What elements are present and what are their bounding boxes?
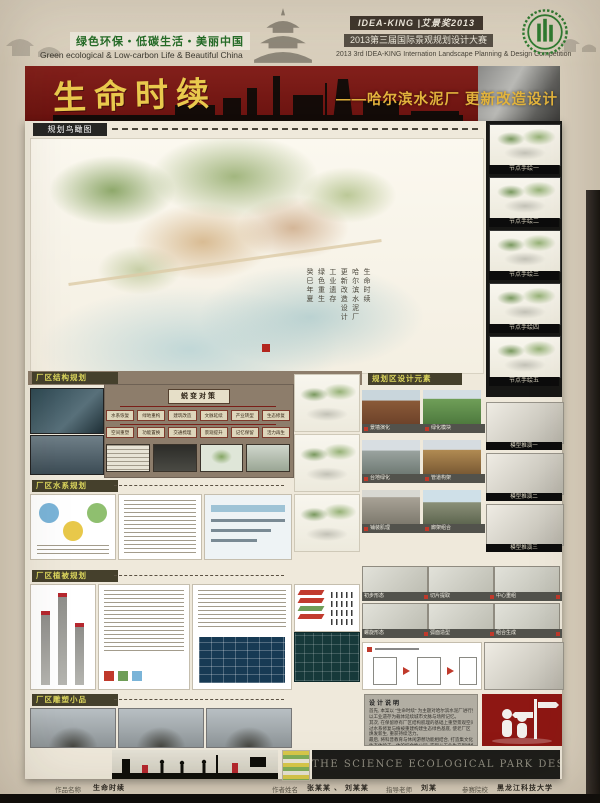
strategy-item: 功能置换 (137, 427, 165, 438)
layer-figures-panel (294, 584, 360, 632)
factory-photo-1 (30, 388, 104, 434)
divider-dashed (114, 699, 284, 700)
red-arrow-chip (364, 427, 368, 431)
figure-row (331, 610, 353, 616)
red-arrow-chip (364, 477, 368, 481)
tower-silhouette (41, 611, 50, 685)
element-caption: 台地绿化 (362, 474, 424, 483)
section-elements: 规划区设计元素 (368, 373, 462, 385)
planting-notes (98, 584, 190, 690)
annotation-line: 绿色重生 (317, 268, 325, 364)
cycle-node-blue (39, 503, 59, 523)
mid-sketch-2 (294, 434, 360, 492)
strategy-item: 交通梳理 (168, 427, 196, 438)
cycle-node-green (87, 503, 107, 523)
transform-caption: 初步形态 (362, 592, 430, 601)
transform-caption: 组合生成 (494, 629, 562, 638)
node-sketch-3 (489, 230, 561, 272)
element-thumb-1 (362, 390, 420, 424)
photo-bottom-edge (0, 794, 600, 803)
figure-rows (327, 589, 357, 628)
design-note: 设计说明 首先, 本案以 "生命时续" 为主题对哈尔滨水泥厂进行更新改造, 以工… (364, 694, 478, 746)
axon-box (373, 657, 397, 685)
layer-green (298, 606, 325, 611)
water-band (211, 505, 285, 512)
red-arrow-icon (403, 667, 410, 675)
tower-elevations (30, 584, 96, 690)
annotation-line: 生命时续 (363, 268, 371, 364)
transform-caption-label: 切片提取 (430, 592, 450, 601)
red-arrow-icon (447, 667, 454, 675)
laurel-emblem-icon (521, 8, 569, 56)
transform-thumb-6 (494, 603, 560, 631)
aerial-plan-drawing (30, 138, 484, 374)
credit-school-value: 黑龙江科技大学 (497, 783, 553, 793)
element-caption: 绿化模块 (423, 424, 485, 433)
transform-thumb-3 (494, 566, 560, 594)
figure-row (331, 601, 353, 607)
poster-title: 生命时续 (52, 67, 217, 119)
strategy-item: 绿地重构 (137, 410, 165, 421)
plant-matrix-table (294, 632, 360, 682)
element-caption-label: 廊架组合 (431, 524, 451, 533)
strategy-thumb-reed (246, 444, 290, 472)
water-cycle-diagram (30, 494, 116, 560)
model-photo-2 (486, 453, 564, 495)
connector-line (120, 424, 276, 425)
element-thumb-3 (362, 440, 420, 474)
node-sketch-caption: 节点手绘三 (489, 271, 559, 280)
legend-chip-red (104, 671, 114, 681)
strategy-item: 产业转型 (231, 410, 259, 421)
axon-diagram (362, 642, 482, 690)
model-photo-3 (486, 504, 564, 546)
element-caption-label: 铺装肌理 (370, 524, 390, 533)
element-caption-label: 管道构架 (431, 474, 451, 483)
strategy-row-2: 空间重塑 功能置换 交通梳理 景观提升 记忆保留 活力再生 (106, 427, 290, 438)
birdseye-tab: 规划鸟瞰图 (33, 123, 107, 136)
section-sculpture: 厂区雕塑小品 (32, 694, 118, 706)
transform-caption-label: 弧面造型 (430, 629, 450, 638)
schematic-bar (211, 539, 257, 542)
diagram-title-line (375, 648, 419, 650)
red-arrow-chip (425, 427, 429, 431)
element-thumb-6 (423, 490, 481, 524)
footer-band: THE SCIENCE ECOLOGICAL PARK DESIGN (312, 750, 560, 779)
element-caption-label: 景墙演化 (370, 424, 390, 433)
divider-dashed (114, 485, 284, 486)
axon-box (459, 657, 477, 685)
street-scene-strip (112, 750, 278, 779)
red-arrow-chip (556, 632, 560, 636)
legend-chip-blue (132, 671, 142, 681)
mid-sketch-3 (294, 494, 360, 552)
strategy-item: 活力再生 (262, 427, 290, 438)
strategy-thumb-sketch (106, 444, 150, 472)
transform-caption-label: 螺旋形态 (364, 629, 384, 638)
annotation-line: 更新改造设计 (340, 268, 348, 364)
strategy-thumb-plant (200, 444, 244, 472)
element-caption: 景墙演化 (362, 424, 424, 433)
node-sketch-caption: 节点手绘一 (489, 165, 559, 174)
gate-render-3 (206, 708, 292, 748)
street-silhouette-icon (112, 750, 278, 779)
figure-row (331, 619, 353, 625)
node-sketch-1 (489, 124, 561, 166)
competition-title-cn: 2013第三届国际景观规划设计大赛 (344, 34, 493, 47)
micro-text-lines (104, 590, 184, 654)
legend-chip-green (118, 671, 128, 681)
credit-advisor-label: 指导老师 (386, 784, 412, 794)
model-caption: 模型推演三 (486, 544, 562, 552)
temple-silhouette-icon (252, 6, 314, 64)
schematic-bar (211, 529, 271, 532)
layer-red (298, 590, 325, 595)
divider-dashed (114, 575, 284, 576)
node-sketch-2 (489, 177, 561, 219)
annotation-line: 癸巳年夏 (306, 268, 314, 364)
design-note-line: 生态体验于一体的综合性公园, 实现从工业生产到绿色生活 (369, 743, 473, 746)
element-caption-label: 绿化模块 (431, 424, 451, 433)
micro-text-lines (124, 500, 196, 554)
strategy-item: 生态修复 (262, 410, 290, 421)
transform-thumb-4 (362, 603, 428, 631)
annotation-line: 哈尔滨水泥厂 (351, 268, 359, 364)
strategy-item: 空间重塑 (106, 427, 134, 438)
red-seal (262, 344, 270, 352)
blue-data-grid (199, 637, 285, 683)
gate-render-2 (118, 708, 204, 748)
layer-red (298, 598, 325, 603)
section-water: 厂区水系规划 (32, 480, 118, 492)
transform-caption-label: 组合生成 (496, 629, 516, 638)
water-text-panel (118, 494, 202, 560)
credit-author-value: 张某某 、 刘某某 (307, 783, 369, 793)
poster-subtitle: ——哈尔滨水泥厂 更新改造设计 (336, 88, 558, 109)
figure-row (331, 592, 353, 598)
design-note-line: 首先, 本案以 "生命时续" 为主题对哈尔滨水泥厂进行更新改造, (369, 708, 473, 714)
figures-signpost-icon (482, 694, 562, 746)
strategy-thumb-stone (153, 444, 197, 472)
factory-photo-2 (30, 435, 104, 475)
divider-dashed-top (112, 128, 478, 130)
section-structure: 厂区结构规划 (32, 372, 118, 384)
transform-caption-label: 初步形态 (364, 592, 384, 601)
idea-king-brand: IDEA-KING |艾景奖2013 (350, 16, 483, 30)
handwritten-annotations: 生命时续 哈尔滨水泥厂 更新改造设计 工业遗存 绿色重生 癸巳年夏 (270, 268, 374, 364)
elevation-panel (282, 750, 310, 781)
section-planting: 厂区植被规划 (32, 570, 118, 582)
model-photo-large (484, 642, 564, 690)
transform-thumb-5 (428, 603, 494, 631)
element-thumb-2 (423, 390, 481, 424)
connector-line (120, 406, 276, 407)
transform-caption: 切片提取 (428, 592, 496, 601)
transform-caption: 螺旋形态 (362, 629, 430, 638)
credit-school-label: 参赛院校 (462, 784, 488, 794)
design-note-line: 其次, 在保留原有厂区结构肌理的基础上重塑景观空间, 通 (369, 720, 473, 726)
element-thumb-5 (362, 490, 420, 524)
mid-sketch-1 (294, 374, 360, 432)
logo-square (482, 694, 562, 746)
cycle-node-yellow (63, 521, 83, 541)
element-caption: 铺装肌理 (362, 524, 424, 533)
red-arrow-chip (425, 527, 429, 531)
red-arrow-chip (425, 477, 429, 481)
design-note-line: 以工业遗存为载体延续城市文脉与场所记忆。 (369, 714, 473, 720)
eco-slogan-en: Green ecological & Low-carbon Life & Bea… (40, 50, 243, 60)
micro-text-lines (198, 590, 286, 630)
node-sketch-4 (489, 283, 561, 325)
water-schematic (204, 494, 292, 560)
node-sketch-caption: 节点手绘四 (489, 324, 559, 333)
credit-advisor-value: 刘某 (421, 783, 437, 793)
credit-author-label: 作者姓名 (272, 784, 298, 794)
transform-caption: 中心重组 (494, 592, 562, 601)
gate-render-1 (30, 708, 116, 748)
species-table-panel (192, 584, 292, 690)
transform-thumb-1 (362, 566, 428, 594)
tower-silhouette (75, 623, 84, 685)
node-sketch-caption: 节点手绘五 (489, 377, 559, 386)
poster-photo: 绿色环保・低碳生活・美丽中国 Green ecological & Low-ca… (0, 0, 600, 803)
node-sketch-5 (489, 336, 561, 378)
transform-caption-label: 中心重组 (496, 592, 516, 601)
credit-work-label: 作品名称 (55, 784, 81, 794)
model-caption: 模型推演二 (486, 493, 562, 501)
strategy-item: 记忆保留 (231, 427, 259, 438)
photo-right-edge (586, 190, 600, 803)
strategy-thumbnails (106, 444, 290, 472)
model-photo-1 (486, 402, 564, 444)
strategy-item: 水系恢复 (106, 410, 134, 421)
transform-thumb-2 (428, 566, 494, 594)
node-sketch-caption: 节点手绘二 (489, 218, 559, 227)
model-caption: 模型推演一 (486, 442, 562, 450)
annotation-line: 工业遗存 (328, 268, 336, 364)
element-thumb-4 (423, 440, 481, 474)
diagram-caption-lines (37, 545, 109, 555)
strategy-root: 蜕变对策 (168, 389, 230, 404)
red-tab (367, 647, 372, 652)
design-note-title: 设计说明 (369, 698, 473, 707)
element-caption-label: 台地绿化 (370, 474, 390, 483)
red-arrow-chip (364, 527, 368, 531)
schematic-bar (211, 519, 285, 522)
axon-box (417, 657, 441, 685)
strategy-item: 文脉延续 (200, 410, 228, 421)
credit-work-value: 生命时续 (93, 783, 125, 793)
transform-caption: 弧面造型 (428, 629, 496, 638)
strategy-item: 建筑改造 (168, 410, 196, 421)
title-banner: 生命时续 ——哈尔滨水泥厂 更新改造设计 (25, 66, 560, 121)
strategy-item: 景观提升 (200, 427, 228, 438)
red-arrow-chip (556, 595, 560, 599)
layer-red (298, 614, 325, 619)
tower-silhouette (58, 593, 67, 685)
strategy-row-1: 水系恢复 绿地重构 建筑改造 文脉延续 产业转型 生态修复 (106, 410, 290, 421)
eco-slogan-cn: 绿色环保・低碳生活・美丽中国 (70, 32, 250, 50)
element-caption: 廊架组合 (423, 524, 485, 533)
element-caption: 管道构架 (423, 474, 485, 483)
